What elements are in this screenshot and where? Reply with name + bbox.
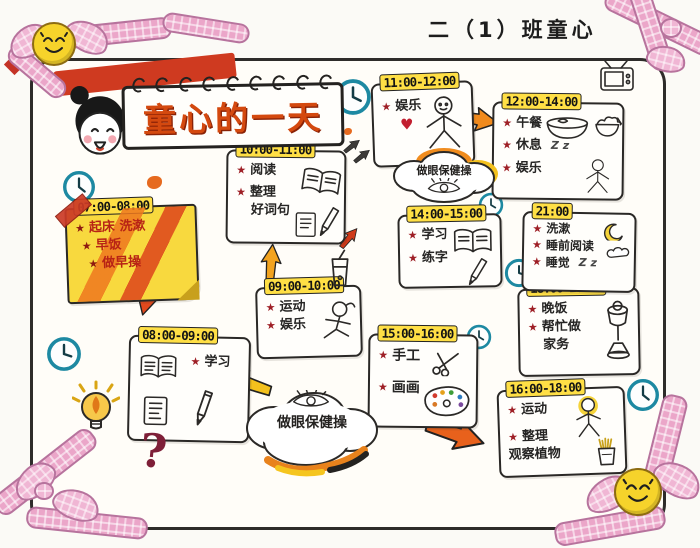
book-icon — [298, 163, 344, 201]
card-1600-1800: 16:00-18:00 ★运动 ★整理 观察植物 — [497, 386, 628, 478]
eye-exercise-cloud-top: 做眼保健操 — [386, 144, 502, 208]
activity-label: 睡觉 — [546, 256, 570, 270]
star-bullet-icon: ★ — [265, 302, 275, 315]
activity-label: 整理 — [250, 186, 276, 201]
card-1000-1100: 10:00-11:00 ★阅读 ★整理 好词句 — [226, 149, 347, 244]
moon-icon — [600, 222, 626, 240]
dessert-cup-icon — [601, 297, 634, 364]
book-icon — [138, 353, 179, 382]
activity-label: 家务 — [543, 338, 569, 353]
clock-icon — [46, 336, 82, 372]
activity-label: 做早操 — [102, 256, 142, 272]
activity-label: 睡前阅读 — [546, 239, 594, 254]
sleep-z-icon: Z z — [579, 257, 597, 270]
star-bullet-icon: ★ — [88, 258, 98, 271]
smiley-face-icon — [614, 468, 662, 516]
eye-exercise-text: 做眼保健操 — [234, 412, 390, 432]
star-bullet-icon: ★ — [502, 118, 512, 131]
time-label: 08:00-09:00 — [138, 326, 218, 345]
star-bullet-icon: ★ — [266, 320, 276, 333]
activity-label: 娱乐 — [280, 318, 306, 334]
star-bullet-icon: ★ — [236, 165, 246, 178]
activity-label: 整理 — [522, 429, 549, 445]
bow-knot — [660, 18, 682, 38]
activity-label: 娱乐 — [395, 99, 422, 115]
sticky-fold — [177, 280, 200, 301]
activity-label: 好词句 — [251, 204, 290, 219]
time-label: 12:00-14:00 — [501, 92, 581, 110]
star-bullet-icon: ★ — [381, 101, 391, 114]
activity-label: 练字 — [422, 251, 448, 266]
activity-label: 运动 — [521, 403, 548, 419]
pencil-icon — [189, 383, 219, 432]
activity-label: 学习 — [421, 228, 447, 243]
palette-icon — [422, 384, 472, 419]
clock-icon — [626, 378, 660, 412]
sleep-z-icon: Z z — [551, 140, 569, 153]
card-0900-1000: 09:00-10:00 ★运动 ★娱乐 — [255, 285, 363, 360]
smiley-face-icon — [32, 22, 76, 66]
star-bullet-icon: ★ — [75, 223, 85, 236]
activity-label: 午餐 — [516, 117, 542, 132]
time-label: 21:00 — [532, 202, 573, 220]
book-icon — [452, 227, 494, 256]
tv-icon — [598, 58, 636, 94]
running-figure-icon — [313, 297, 358, 352]
activity-label: 运动 — [279, 300, 305, 316]
star-bullet-icon: ★ — [508, 432, 518, 445]
activity-label: 娱乐 — [516, 161, 542, 176]
activity-label: 晚饭 — [541, 302, 567, 317]
card-2100: 21:00 ★洗漱 ★睡前阅读 ★睡觉Z z — [521, 211, 636, 293]
time-label: 11:00-12:00 — [379, 72, 459, 92]
scissors-icon — [430, 350, 462, 376]
cloud-small-icon — [606, 244, 634, 260]
eye-exercise-cloud-bottom: 做眼保健操 — [234, 384, 390, 478]
ribbon-band — [161, 11, 251, 45]
star-bullet-icon: ★ — [528, 322, 538, 335]
activity-label: 帮忙做 — [542, 320, 581, 336]
star-bullet-icon: ★ — [82, 240, 92, 253]
activity-label: 观察植物 — [509, 447, 562, 464]
eye-icon — [290, 390, 332, 410]
eye-exercise-text: 做眼保健操 — [386, 162, 502, 178]
activity-label: 洗漱 — [546, 222, 570, 236]
spiral-binding — [132, 74, 332, 92]
time-label: 15:00-16:00 — [377, 325, 457, 343]
plant-cup-icon — [592, 434, 621, 469]
activity-label: 早饭 — [95, 238, 122, 254]
drink-cup-icon — [328, 248, 352, 290]
star-bullet-icon: ★ — [408, 230, 418, 243]
eye-icon — [426, 178, 462, 196]
class-label: 二（1）班童心 — [428, 14, 597, 44]
card-1400-1500: 14:00-15:00 ★学习 ★练字 — [397, 213, 502, 289]
poster-title: 童心的一天 — [125, 85, 342, 147]
activity-label: 画画 — [392, 380, 420, 396]
star-bullet-icon: ★ — [528, 304, 538, 317]
activity-label: 手工 — [392, 348, 420, 364]
card-1200-1400: 12:00-14:00 ★午餐 ★休息Z z ★娱乐 — [491, 101, 624, 200]
bow-knot — [34, 482, 54, 500]
question-mark: ? — [138, 423, 170, 479]
star-bullet-icon: ★ — [236, 187, 246, 200]
star-bullet-icon: ★ — [190, 356, 200, 369]
title-card: 童心的一天 — [121, 82, 344, 150]
activity-label: 起床 洗漱 — [89, 220, 146, 237]
star-bullet-icon: ★ — [532, 240, 542, 253]
star-bullet-icon: ★ — [502, 162, 512, 175]
card-1800-2000: 18:00-20:00 ★晚饭 ★帮忙做 家务 — [517, 287, 641, 377]
activity-label: 休息 — [516, 138, 542, 153]
activity-label: 阅读 — [250, 164, 276, 179]
star-bullet-icon: ★ — [408, 253, 418, 266]
star-bullet-icon: ★ — [532, 256, 542, 269]
noodle-bowl-icon — [544, 116, 590, 140]
card-0700-0800: 07:00-08:00 ★起床 洗漱 ★早饭 ★做早操 — [64, 204, 199, 305]
star-pose-figure-icon — [580, 158, 616, 196]
star-bullet-icon: ★ — [502, 139, 512, 152]
star-bullet-icon: ★ — [532, 223, 542, 236]
activity-label: 学习 — [204, 355, 230, 370]
star-bullet-icon: ★ — [378, 349, 388, 362]
star-bullet-icon: ★ — [507, 405, 517, 418]
rice-bowl-icon — [592, 112, 622, 140]
